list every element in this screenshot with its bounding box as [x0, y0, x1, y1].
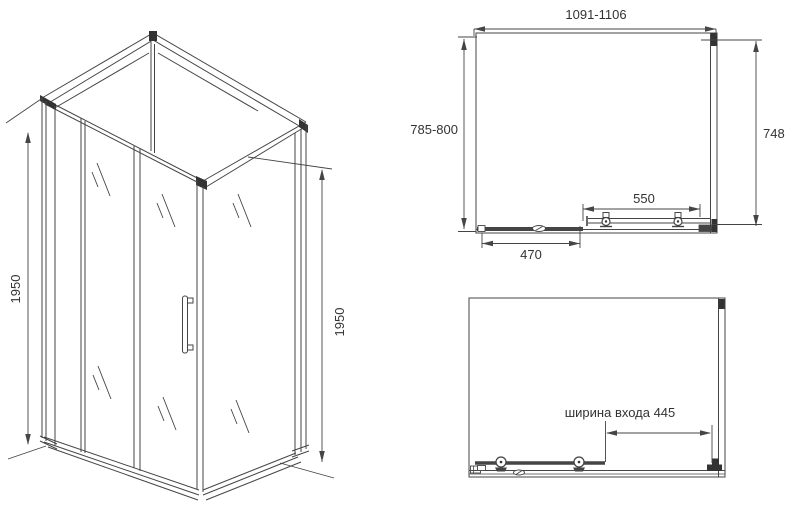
glass-sparkles — [92, 163, 251, 433]
plan-view — [458, 26, 762, 248]
iso-height-left-label: 1950 — [8, 259, 24, 319]
plan-corner-foot — [699, 225, 711, 232]
plan-door-label: 470 — [482, 247, 580, 263]
front-roller-2 — [573, 457, 585, 472]
plan-roller-1 — [600, 213, 612, 227]
entrance-width-label: ширина входа 445 — [495, 405, 745, 421]
door-handle — [183, 296, 194, 353]
front-corner-foot — [707, 465, 722, 472]
roof-back-corner-cap — [149, 31, 157, 41]
dimension-entrance-width — [606, 421, 713, 463]
floor-track — [44, 437, 301, 500]
plan-inner-label: 550 — [588, 191, 700, 207]
plan-side-label: 748 — [763, 126, 800, 142]
front-roller-1 — [495, 457, 507, 472]
plan-width-label: 1091-1106 — [476, 7, 716, 23]
back-corner-edge — [151, 42, 155, 153]
dimension-height-right — [248, 157, 334, 478]
dimension-plan-width — [474, 26, 716, 36]
roof-front-corner-cap — [196, 176, 207, 190]
technical-drawing-sheet: 1091-1106 785-800 748 550 470 ширина вхо… — [0, 0, 800, 517]
plan-corner-bracket — [712, 219, 718, 232]
front-wall-profile-top — [719, 299, 725, 309]
left-wall-profile — [40, 98, 57, 449]
front-door-panel — [475, 457, 605, 475]
front-view — [469, 298, 725, 477]
plan-roller-2 — [672, 213, 684, 227]
iso-height-right-label: 1950 — [332, 292, 348, 352]
dimension-plan-depth — [458, 37, 477, 232]
iso-view — [6, 31, 334, 500]
drawing-linework — [0, 0, 800, 517]
plan-door-panel — [477, 226, 583, 232]
plan-wall-profile-top — [711, 33, 718, 46]
plan-depth-label: 785-800 — [388, 122, 458, 138]
roof-frame — [40, 31, 308, 190]
front-outline — [469, 298, 725, 477]
right-wall-profile — [292, 124, 309, 457]
